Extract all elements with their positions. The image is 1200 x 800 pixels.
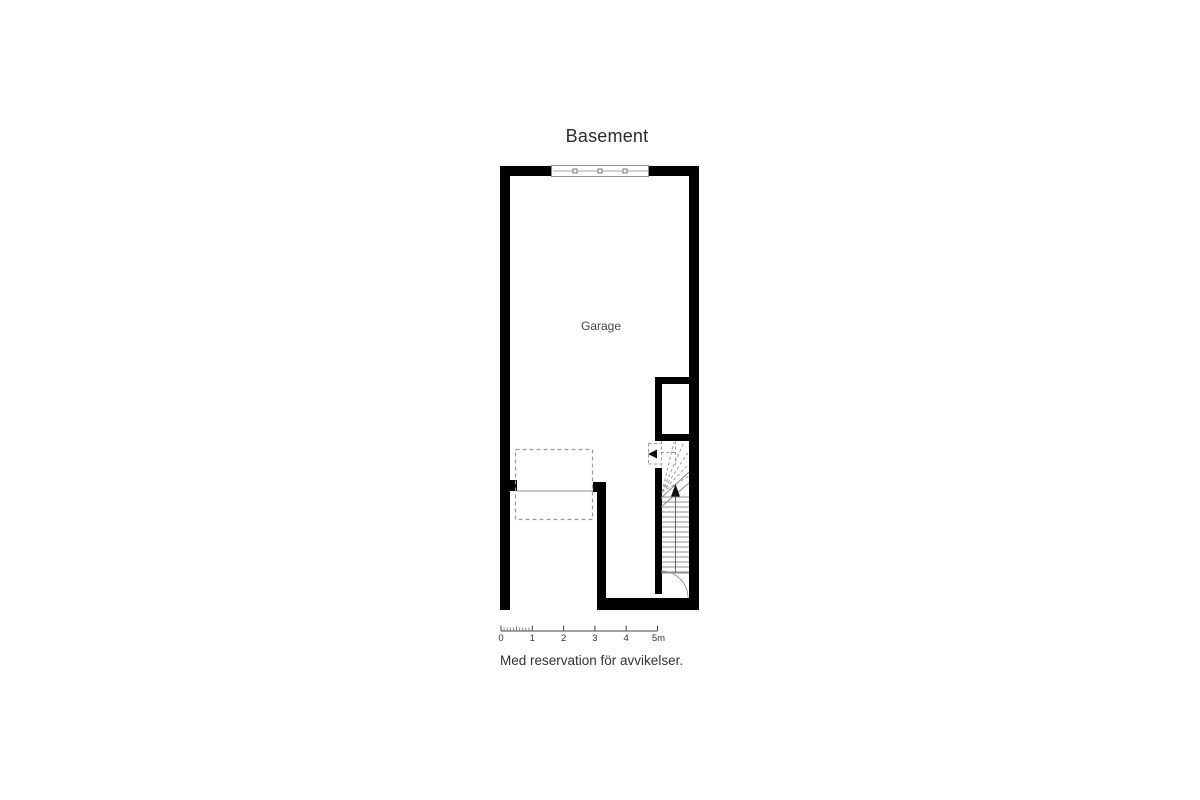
walls <box>500 166 699 610</box>
wall-inner-vertical <box>597 482 606 598</box>
floor-plan-drawing <box>0 0 1200 800</box>
wall-right <box>689 166 699 610</box>
closet-wall-left <box>655 377 662 441</box>
wall-left <box>500 166 510 610</box>
scale-tick-label-4: 4 <box>624 633 629 644</box>
dashed-clearance-area <box>516 450 593 520</box>
stair-winder-dashed <box>649 441 690 492</box>
room-label-garage: Garage <box>551 319 651 333</box>
scale-tick-label-3: 3 <box>592 633 597 644</box>
scale-bar-fine-ticks <box>504 627 529 632</box>
garage-door-icon <box>552 166 649 177</box>
scale-tick-label-0: 0 <box>498 633 503 644</box>
wall-inner-vertical-stub <box>593 482 606 492</box>
stair-exit-left-arrow-icon <box>648 450 657 459</box>
wall-bottom <box>597 598 699 610</box>
scale-tick-label-5: 5m <box>652 633 665 644</box>
scale-bar <box>501 626 658 632</box>
disclaimer-text: Med reservation för avvikelser. <box>500 653 683 668</box>
scale-tick-label-2: 2 <box>561 633 566 644</box>
door-swing-arc <box>661 571 688 598</box>
closet-wall-bottom <box>655 434 689 441</box>
wall-top-left-segment <box>500 166 553 176</box>
stair-wall-left <box>655 468 662 594</box>
scale-tick-label-1: 1 <box>530 633 535 644</box>
page-title: Basement <box>507 126 707 147</box>
floor-plan-page: Basement Garage 0 1 2 3 4 5m Med reserva… <box>0 0 1200 800</box>
